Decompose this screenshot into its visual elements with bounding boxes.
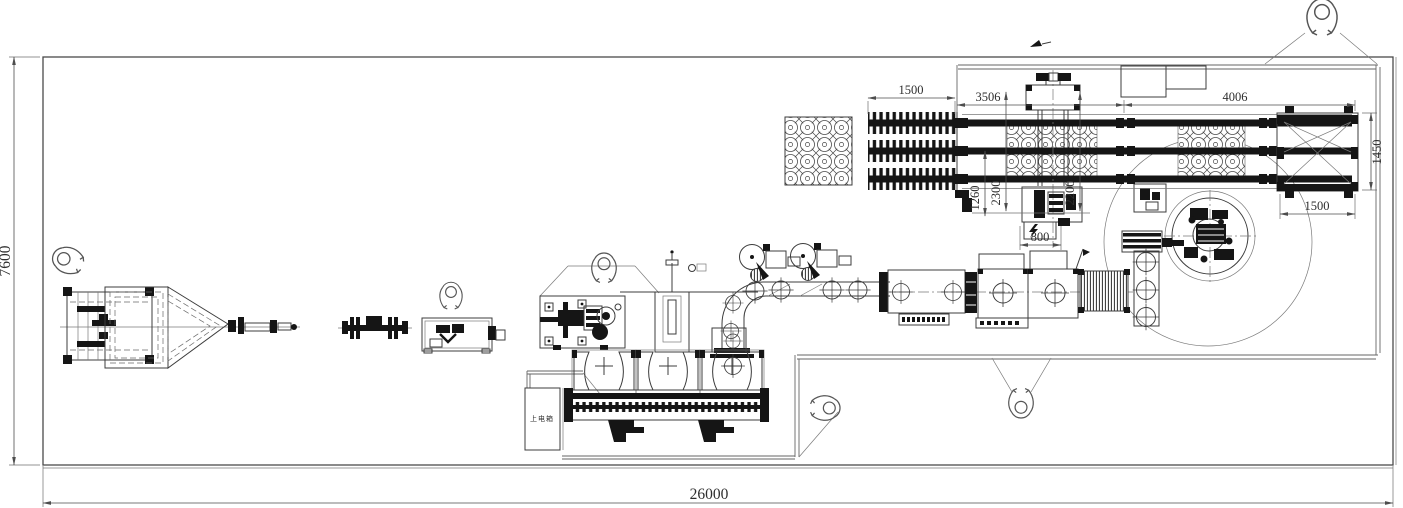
process-line xyxy=(710,243,1133,358)
winder-head xyxy=(540,300,621,350)
dim-overall-width: 26000 xyxy=(43,466,1393,507)
dim-conveyor: 1500 3506 4006 1260 2300 2200 800 1450 1… xyxy=(868,83,1384,250)
pallet-tray-left xyxy=(785,117,852,185)
straightener-shaft xyxy=(338,316,412,339)
dim-text-1260: 1260 xyxy=(968,186,982,211)
layout-plan-svg: 7600 26000 xyxy=(0,0,1403,508)
drawing-canvas: 7600 26000 xyxy=(0,0,1403,508)
dim-text-4006: 4006 xyxy=(1223,90,1248,104)
section-marker xyxy=(1030,40,1051,47)
person-marker-6 xyxy=(1307,0,1337,35)
person-marker-4 xyxy=(811,396,840,421)
wheel-unit-1 xyxy=(740,244,801,282)
dim-text-7600: 7600 xyxy=(0,245,14,276)
vertical-press xyxy=(655,250,706,352)
dim-text-2300: 2300 xyxy=(989,181,1003,206)
person-marker-5 xyxy=(1009,389,1034,418)
dim-text-26000: 26000 xyxy=(690,486,729,503)
person-marker-1 xyxy=(49,243,87,278)
dim-text-3506: 3506 xyxy=(976,90,1001,104)
machine-bed xyxy=(564,388,769,442)
dim-text-1500-left: 1500 xyxy=(899,83,924,97)
bench-machine xyxy=(422,318,505,353)
dim-text-1500-right: 1500 xyxy=(1305,199,1330,213)
person-marker-2 xyxy=(440,282,462,309)
dim-overall-height: 7600 xyxy=(0,57,40,465)
person-marker-3 xyxy=(592,253,617,282)
extrusion-cluster xyxy=(540,250,769,442)
power-box-label: 上电箱 xyxy=(530,414,554,423)
dim-text-2200: 2200 xyxy=(1063,181,1077,206)
power-box: 上电箱 xyxy=(525,388,563,450)
roller-conveyor xyxy=(868,112,1352,212)
dim-text-800: 800 xyxy=(1031,230,1050,244)
dim-text-1450: 1450 xyxy=(1370,140,1384,165)
payoff-machine xyxy=(60,287,300,368)
